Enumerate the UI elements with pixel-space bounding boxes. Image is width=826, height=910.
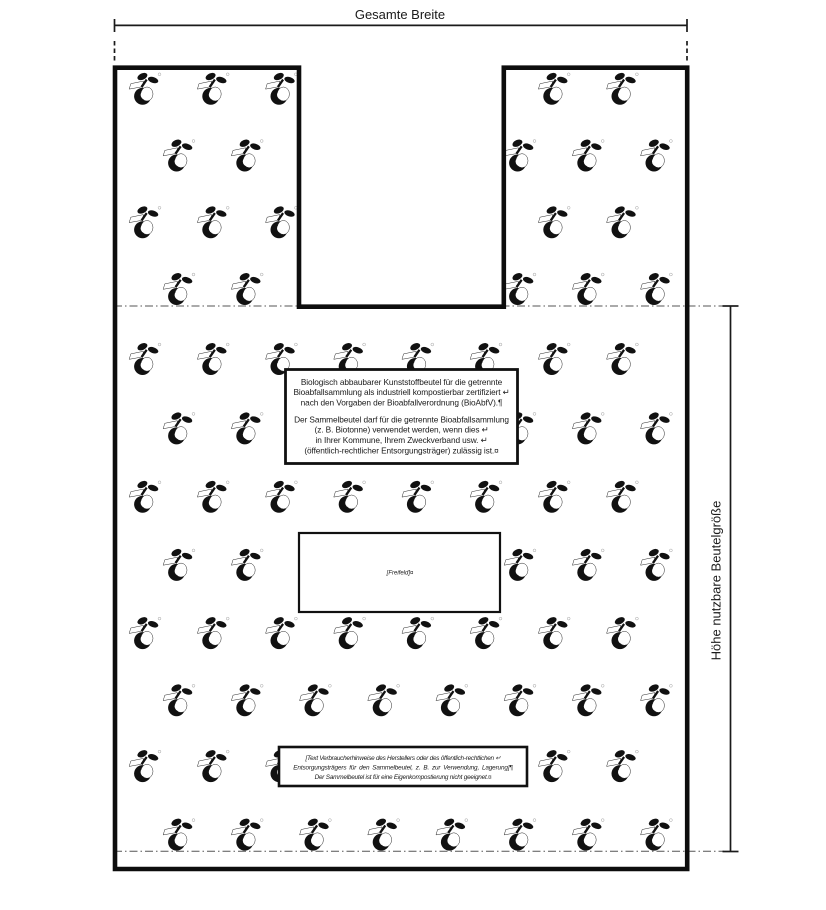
svg-text:Der Sammelbeutel ist für eine: Der Sammelbeutel ist für eine Eigenkompo… [315, 774, 492, 781]
svg-text:Biologisch abbaubarer Kunststo: Biologisch abbaubarer Kunststoffbeutel f… [301, 377, 503, 387]
svg-text:[Text Verbraucherhinweise des: [Text Verbraucherhinweise des Hersteller… [305, 755, 502, 762]
svg-text:Gesamte Breite: Gesamte Breite [355, 7, 445, 22]
svg-text:(z. B. Biotonne) verwendet wer: (z. B. Biotonne) verwendet werden, wenn … [315, 425, 489, 435]
svg-text:Der Sammelbeutel darf für die: Der Sammelbeutel darf für die getrennte … [294, 414, 509, 424]
svg-text:[Freifeld]¤: [Freifeld]¤ [386, 571, 414, 577]
svg-text:Entsorgungsträgers für den Sam: Entsorgungsträgers für den Sammelbeutel,… [293, 764, 513, 771]
svg-text:Höhe nutzbare Beutelgröße: Höhe nutzbare Beutelgröße [709, 501, 724, 661]
svg-text:nach den Vorgaben der Bioabfal: nach den Vorgaben der Bioabfallverordnun… [301, 398, 503, 408]
svg-text:Bioabfallsammlung als industri: Bioabfallsammlung als industriell kompos… [293, 387, 509, 397]
svg-text:(öffentlich-rechtlicher Entsor: (öffentlich-rechtlicher Entsorgungsträge… [304, 446, 499, 456]
svg-text:in Ihrer Kommune, Ihrem Zweckv: in Ihrer Kommune, Ihrem Zweckverband usw… [316, 435, 488, 445]
